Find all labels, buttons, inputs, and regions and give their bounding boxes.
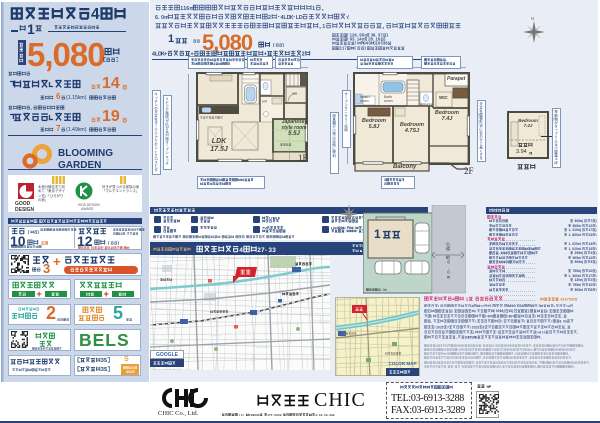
- svg-text:(: (: [512, 309, 514, 312]
- svg-text:/: /: [475, 320, 476, 323]
- svg-text:9: 9: [590, 260, 592, 263]
- svg-text:/: /: [547, 309, 548, 312]
- svg-text:7: 7: [447, 325, 449, 328]
- svg-text:0: 0: [121, 232, 123, 235]
- svg-text:0: 0: [590, 269, 592, 272]
- svg-text:7: 7: [590, 219, 592, 222]
- svg-text:): ): [387, 33, 389, 37]
- svg-text:(: (: [580, 224, 582, 227]
- svg-text:(: (: [273, 43, 275, 47]
- svg-text:(: (: [582, 278, 584, 281]
- svg-text:5: 5: [112, 246, 114, 249]
- svg-text:8: 8: [483, 325, 485, 328]
- svg-text:/: /: [515, 304, 516, 307]
- svg-text:-: -: [265, 246, 267, 252]
- svg-text:5: 5: [468, 348, 470, 350]
- svg-text:D: D: [299, 15, 303, 20]
- svg-text:%: %: [512, 314, 515, 317]
- svg-text:7: 7: [590, 274, 592, 277]
- svg-text:3: 3: [272, 246, 276, 252]
- svg-text:(: (: [580, 247, 582, 250]
- svg-text:(: (: [354, 46, 356, 50]
- svg-text:DESIGN: DESIGN: [15, 207, 35, 212]
- svg-text:3: 3: [590, 242, 592, 245]
- svg-text:4: 4: [590, 251, 592, 254]
- svg-text:): ): [595, 269, 596, 272]
- svg-text:): ): [595, 242, 596, 245]
- svg-text:(: (: [582, 219, 584, 222]
- svg-text:%: %: [491, 314, 494, 317]
- svg-text:+: +: [164, 52, 167, 57]
- svg-text:.: .: [381, 288, 382, 291]
- svg-text:7: 7: [344, 46, 347, 50]
- svg-text:,: ,: [570, 247, 571, 250]
- svg-text:): ): [595, 228, 596, 231]
- svg-text:): ): [595, 274, 596, 277]
- svg-text:K: K: [290, 15, 294, 20]
- svg-text:㎡: ㎡: [529, 150, 532, 155]
- svg-text:N: N: [531, 16, 534, 21]
- svg-text:/: /: [494, 309, 495, 312]
- svg-text:m: m: [164, 15, 169, 20]
- svg-text:BLOOMING: BLOOMING: [58, 148, 113, 159]
- svg-text:2: 2: [590, 224, 592, 227]
- svg-text:,: ,: [570, 228, 571, 231]
- svg-text:2: 2: [280, 413, 282, 416]
- svg-text:(: (: [580, 233, 582, 236]
- svg-text:D: D: [335, 226, 338, 230]
- svg-text:(: (: [582, 251, 584, 254]
- svg-text:5: 5: [463, 348, 465, 350]
- svg-text:☆: ☆: [345, 15, 349, 20]
- svg-text:3: 3: [489, 304, 491, 307]
- svg-text:/: /: [475, 309, 476, 312]
- svg-text:): ): [595, 219, 596, 222]
- svg-text:/: /: [431, 314, 432, 317]
- svg-text:s: s: [531, 348, 533, 350]
- svg-text:(: (: [28, 230, 30, 234]
- svg-text:V: V: [264, 226, 267, 230]
- svg-text:3: 3: [590, 233, 592, 236]
- svg-text:▶: ▶: [359, 249, 362, 253]
- svg-text:2: 2: [333, 413, 335, 416]
- svg-text:(: (: [473, 330, 475, 333]
- svg-text:h: h: [544, 330, 546, 333]
- svg-text:4: 4: [239, 246, 243, 252]
- svg-text:(: (: [580, 269, 582, 272]
- svg-text:4: 4: [568, 304, 570, 307]
- svg-text:): ): [364, 46, 366, 50]
- svg-text:/: /: [535, 314, 536, 317]
- svg-text:3: 3: [258, 413, 260, 416]
- svg-text:,: ,: [570, 274, 571, 277]
- svg-text:/: /: [551, 320, 552, 323]
- svg-text:5: 5: [477, 325, 479, 328]
- svg-text:/: /: [438, 304, 439, 307]
- svg-text:(: (: [580, 242, 582, 245]
- svg-text:): ): [595, 260, 596, 263]
- svg-text:4: 4: [213, 62, 215, 66]
- svg-text:t: t: [128, 246, 130, 249]
- svg-text:1: 1: [447, 353, 449, 355]
- svg-text:): ): [283, 43, 285, 47]
- svg-text:): ): [595, 224, 596, 227]
- svg-text:6: 6: [458, 357, 460, 359]
- svg-text:2: 2: [590, 256, 592, 259]
- svg-text:々: 々: [363, 62, 367, 66]
- svg-text:): ): [243, 413, 244, 416]
- svg-text:S: S: [575, 297, 577, 301]
- svg-text:8: 8: [590, 288, 592, 291]
- svg-text:/: /: [524, 320, 525, 323]
- svg-text:m: m: [565, 320, 568, 323]
- svg-text:2: 2: [503, 309, 505, 312]
- svg-text:P: P: [489, 384, 491, 388]
- svg-text:(: (: [582, 288, 584, 291]
- svg-text:,: ,: [570, 242, 571, 245]
- svg-text:5: 5: [104, 358, 107, 363]
- svg-text:): ): [595, 288, 596, 291]
- svg-text:): ): [595, 256, 596, 259]
- svg-text:/: /: [452, 309, 453, 312]
- svg-text:7: 7: [482, 304, 484, 307]
- svg-text:3: 3: [384, 178, 386, 182]
- svg-text:m: m: [385, 288, 387, 291]
- svg-text:): ): [595, 251, 596, 254]
- svg-text:4: 4: [471, 304, 473, 307]
- svg-text:5: 5: [453, 357, 455, 359]
- svg-text:): ): [595, 247, 596, 250]
- svg-text:E: E: [475, 336, 477, 339]
- svg-text:2: 2: [590, 278, 592, 281]
- svg-text:): ): [595, 233, 596, 236]
- svg-text:(: (: [108, 241, 110, 245]
- svg-text:.: .: [158, 15, 160, 20]
- svg-text:7: 7: [590, 228, 592, 231]
- svg-text:E: E: [278, 216, 280, 220]
- svg-text:(: (: [580, 283, 582, 286]
- svg-text:1: 1: [322, 24, 325, 29]
- svg-text:4: 4: [452, 297, 455, 302]
- svg-text:2: 2: [268, 15, 271, 20]
- svg-text:): ): [118, 241, 120, 245]
- svg-text:(: (: [580, 228, 582, 231]
- svg-text:1: 1: [466, 297, 469, 302]
- svg-text:): ): [595, 278, 596, 281]
- svg-text:5: 5: [104, 367, 107, 372]
- svg-text:5: 5: [442, 325, 444, 328]
- svg-text:2: 2: [302, 52, 305, 57]
- svg-text:(: (: [582, 260, 584, 263]
- svg-text:(: (: [580, 274, 582, 277]
- svg-text:): ): [528, 309, 529, 312]
- svg-text:0: 0: [590, 283, 592, 286]
- svg-text:㎡: ㎡: [189, 4, 195, 11]
- svg-text:4: 4: [91, 6, 100, 21]
- svg-text:0: 0: [93, 246, 95, 249]
- svg-text:2: 2: [441, 344, 443, 346]
- svg-text:G: G: [504, 348, 506, 350]
- svg-text:/: /: [502, 320, 503, 323]
- svg-text:,: ,: [570, 233, 571, 236]
- svg-text:AWARD: AWARD: [81, 207, 94, 211]
- svg-text:(: (: [580, 256, 582, 259]
- svg-text:3: 3: [590, 247, 592, 250]
- svg-text:): ): [595, 283, 596, 286]
- svg-text:1: 1: [312, 6, 315, 11]
